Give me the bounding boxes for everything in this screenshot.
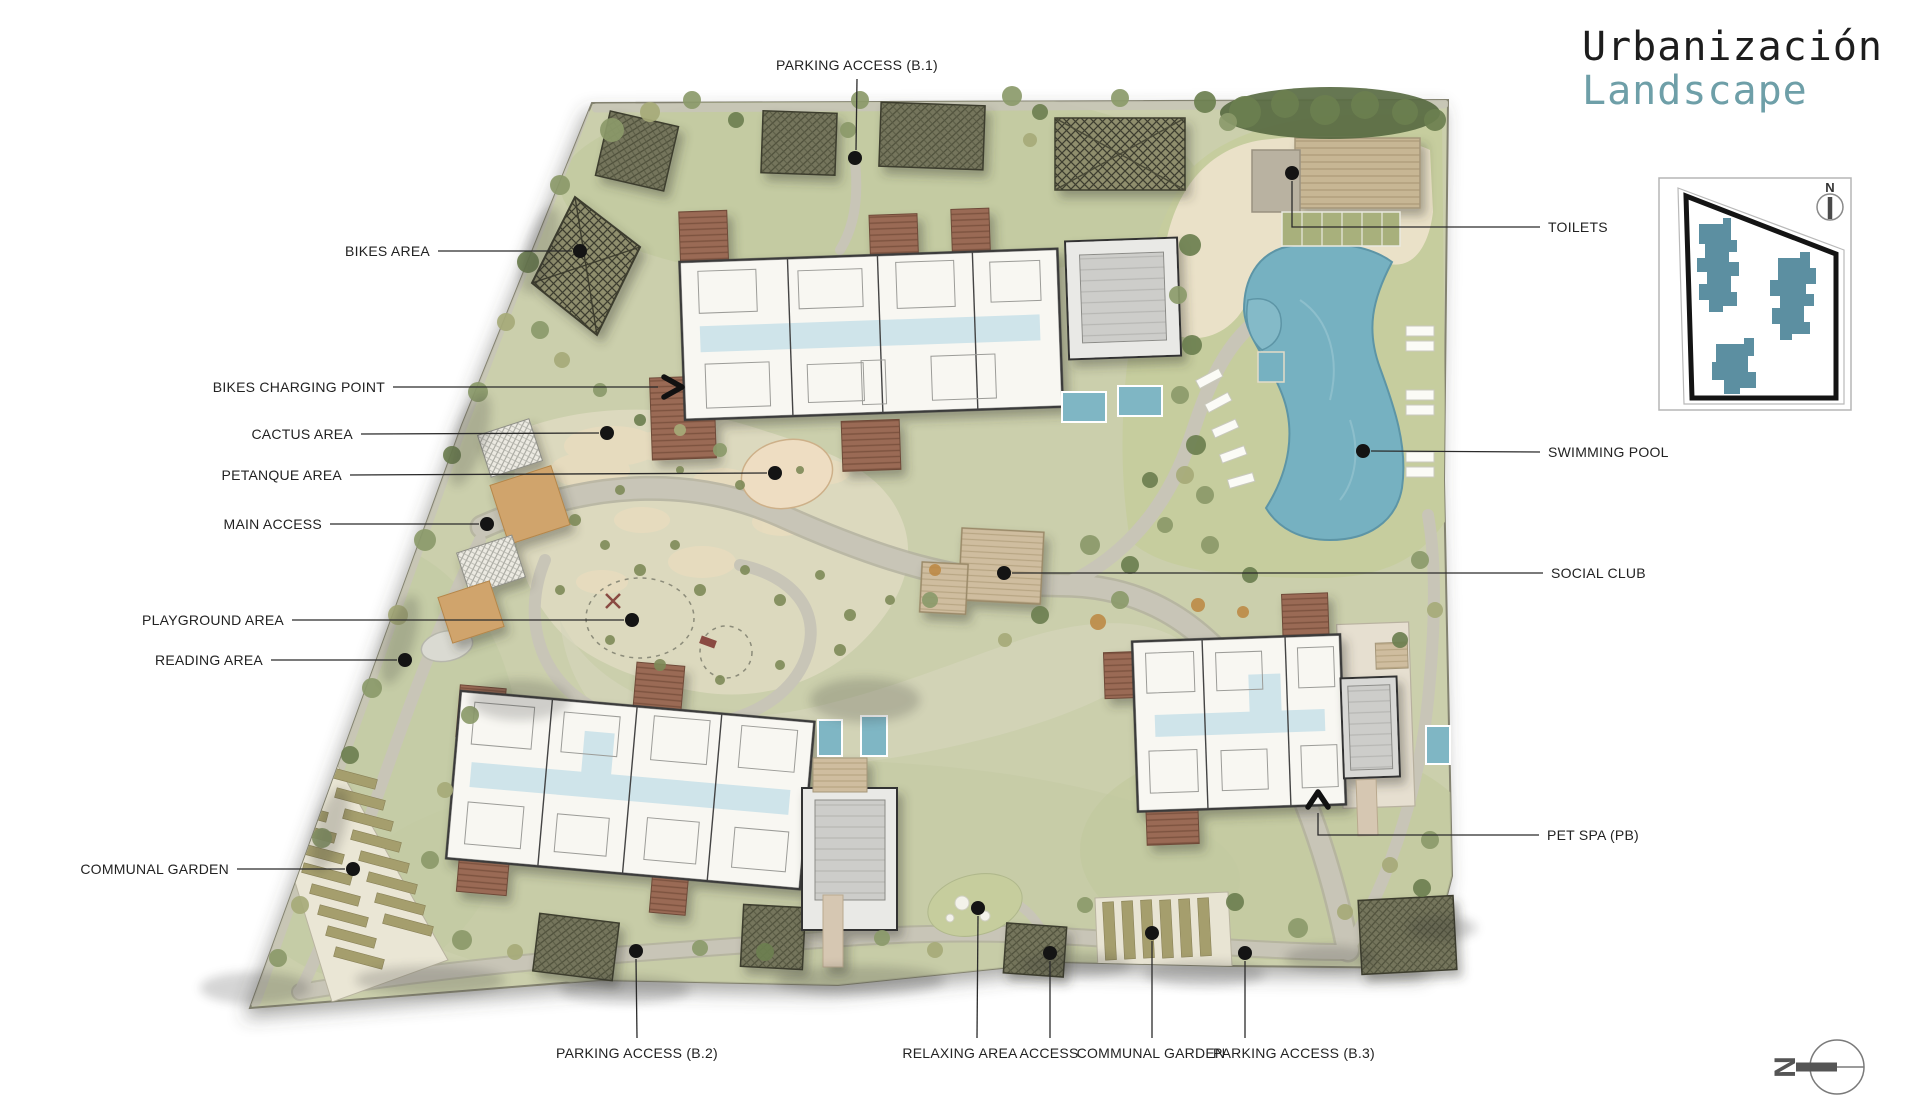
label-communal-garden-left: COMMUNAL GARDEN (80, 859, 229, 879)
inset-north-label: N (1825, 180, 1834, 195)
label-cactus-area: CACTUS AREA (251, 424, 353, 444)
label-access: ACCESS (1019, 1043, 1078, 1063)
label-swimming-pool: SWIMMING POOL (1548, 442, 1669, 462)
label-parking-access-b1: PARKING ACCESS (B.1) (776, 55, 938, 75)
site-ground (200, 85, 1480, 1008)
site-plan-drawing: N N (0, 0, 1920, 1113)
site-plan-page: N N Urbanización Landscape PARKING ACCES… (0, 0, 1920, 1113)
label-playground-area: PLAYGROUND AREA (142, 610, 284, 630)
label-pet-spa: PET SPA (PB) (1547, 825, 1639, 845)
label-bikes-area: BIKES AREA (345, 241, 430, 261)
label-petanque-area: PETANQUE AREA (222, 465, 342, 485)
label-communal-garden-bottom: COMMUNAL GARDEN (1077, 1043, 1226, 1063)
label-main-access: MAIN ACCESS (224, 514, 322, 534)
label-social-club: SOCIAL CLUB (1551, 563, 1646, 583)
compass-north-label: N (1769, 1056, 1802, 1078)
page-title-line2: Landscape (1582, 70, 1808, 112)
label-parking-access-b3: PARKING ACCESS (B.3) (1213, 1043, 1375, 1063)
inset-key-map: N (1659, 178, 1851, 410)
label-toilets: TOILETS (1548, 217, 1608, 237)
page-title-line1: Urbanización (1582, 26, 1883, 68)
label-relaxing-area: RELAXING AREA (902, 1043, 1017, 1063)
compass-icon: N (1769, 1040, 1864, 1094)
label-bikes-charging-point: BIKES CHARGING POINT (213, 377, 385, 397)
label-reading-area: READING AREA (155, 650, 263, 670)
label-parking-access-b2: PARKING ACCESS (B.2) (556, 1043, 718, 1063)
